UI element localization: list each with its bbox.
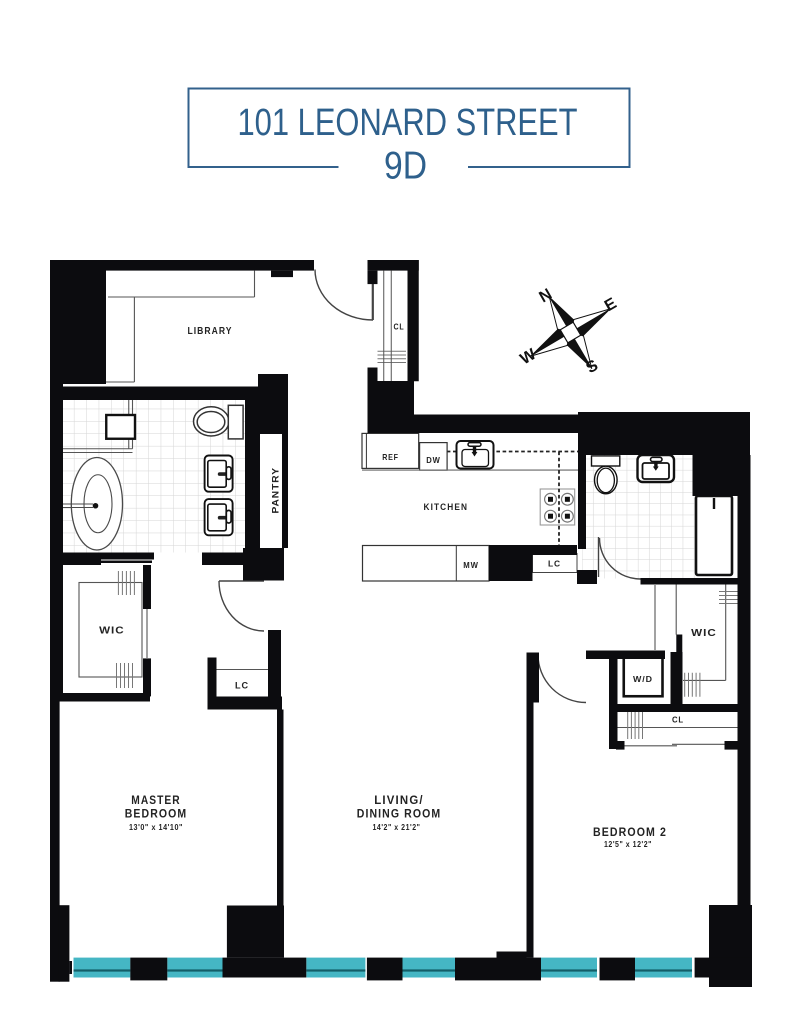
svg-text:LIBRARY: LIBRARY	[188, 326, 233, 337]
svg-text:BEDROOM 2: BEDROOM 2	[593, 827, 667, 839]
svg-text:CL: CL	[672, 715, 684, 725]
svg-text:MASTER: MASTER	[131, 795, 181, 807]
svg-text:WIC: WIC	[691, 628, 717, 639]
svg-text:DW: DW	[426, 456, 441, 465]
svg-text:LIVING/: LIVING/	[374, 795, 424, 807]
svg-text:MW: MW	[463, 561, 479, 570]
svg-text:12'5" x 12'2": 12'5" x 12'2"	[604, 840, 652, 849]
svg-text:13'0" x 14'10": 13'0" x 14'10"	[129, 823, 183, 832]
svg-text:WIC: WIC	[99, 625, 125, 636]
svg-text:PANTRY: PANTRY	[271, 467, 282, 514]
svg-text:KITCHEN: KITCHEN	[424, 502, 469, 512]
svg-text:9D: 9D	[384, 145, 427, 188]
svg-text:101 LEONARD STREET: 101 LEONARD STREET	[238, 102, 578, 144]
svg-text:REF: REF	[382, 452, 399, 462]
svg-text:LC: LC	[548, 559, 561, 569]
svg-text:LC: LC	[235, 681, 249, 691]
svg-text:CL: CL	[394, 323, 405, 332]
svg-text:14'2" x 21'2": 14'2" x 21'2"	[373, 823, 421, 832]
svg-text:DINING ROOM: DINING ROOM	[357, 809, 442, 821]
svg-text:BEDROOM: BEDROOM	[125, 809, 188, 821]
svg-text:W/D: W/D	[633, 674, 653, 684]
